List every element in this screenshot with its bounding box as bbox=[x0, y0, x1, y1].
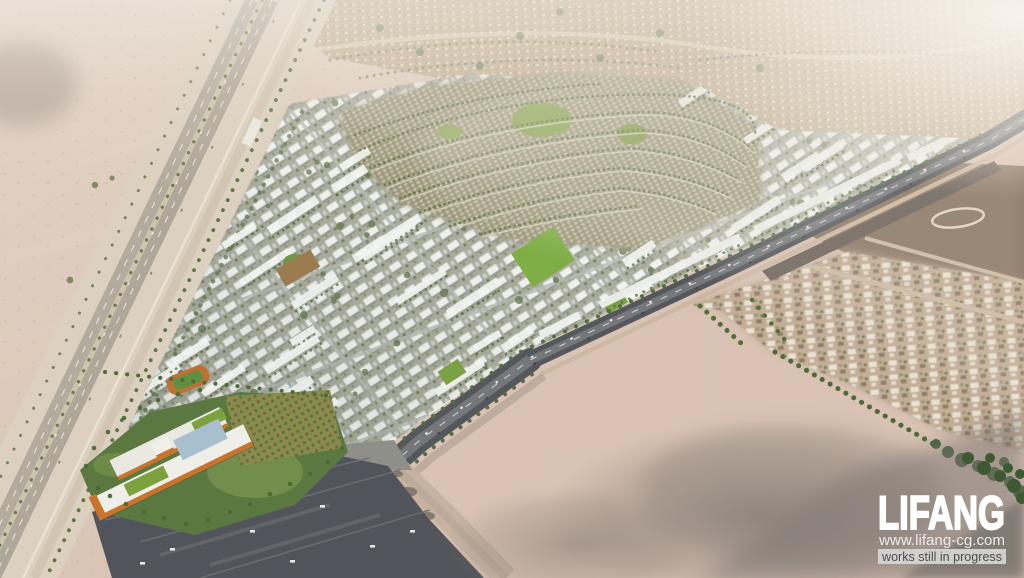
svg-text:works still in progress: works still in progress bbox=[881, 549, 1002, 564]
svg-text:www.lifang-cg.com: www.lifang-cg.com bbox=[878, 532, 1005, 549]
